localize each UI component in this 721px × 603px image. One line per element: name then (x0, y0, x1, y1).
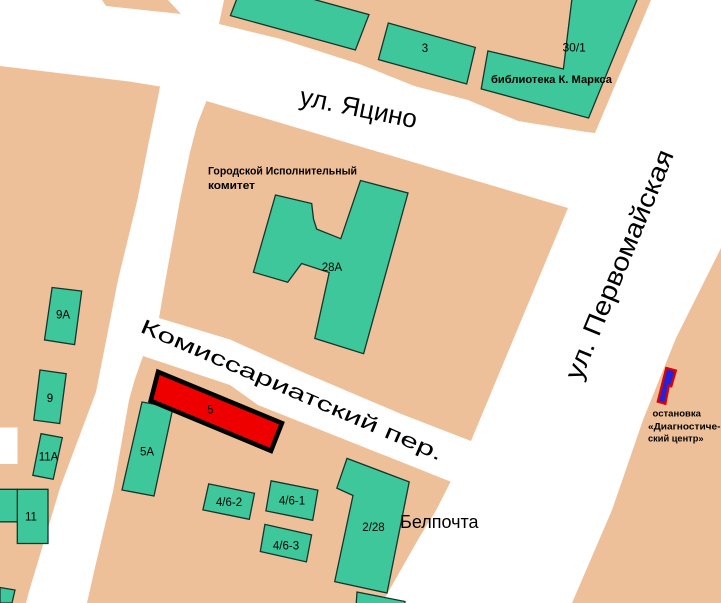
svg-text:11А: 11А (39, 452, 59, 464)
svg-text:5А: 5А (140, 447, 154, 459)
svg-text:5: 5 (207, 405, 213, 417)
svg-text:30/1: 30/1 (563, 41, 587, 55)
svg-text:Городской Исполнительный: Городской Исполнительный (208, 166, 357, 178)
svg-text:комитет: комитет (208, 180, 256, 192)
svg-text:4/6-2: 4/6-2 (216, 497, 242, 509)
svg-text:ский центр»: ский центр» (648, 434, 704, 445)
svg-text:«Диагностиче-: «Диагностиче- (648, 421, 721, 432)
svg-text:28А: 28А (322, 262, 343, 274)
svg-text:4/6-3: 4/6-3 (273, 541, 299, 553)
svg-text:4/6-1: 4/6-1 (279, 496, 305, 508)
svg-text:9: 9 (47, 393, 53, 405)
svg-text:остановка: остановка (653, 408, 702, 419)
svg-text:9А: 9А (56, 310, 70, 322)
svg-text:11: 11 (25, 512, 37, 524)
svg-text:3: 3 (422, 43, 428, 55)
svg-text:2/28: 2/28 (362, 522, 384, 534)
svg-text:Белпочта: Белпочта (400, 512, 480, 532)
svg-text:библиотека К. Маркса: библиотека К. Маркса (491, 74, 613, 86)
